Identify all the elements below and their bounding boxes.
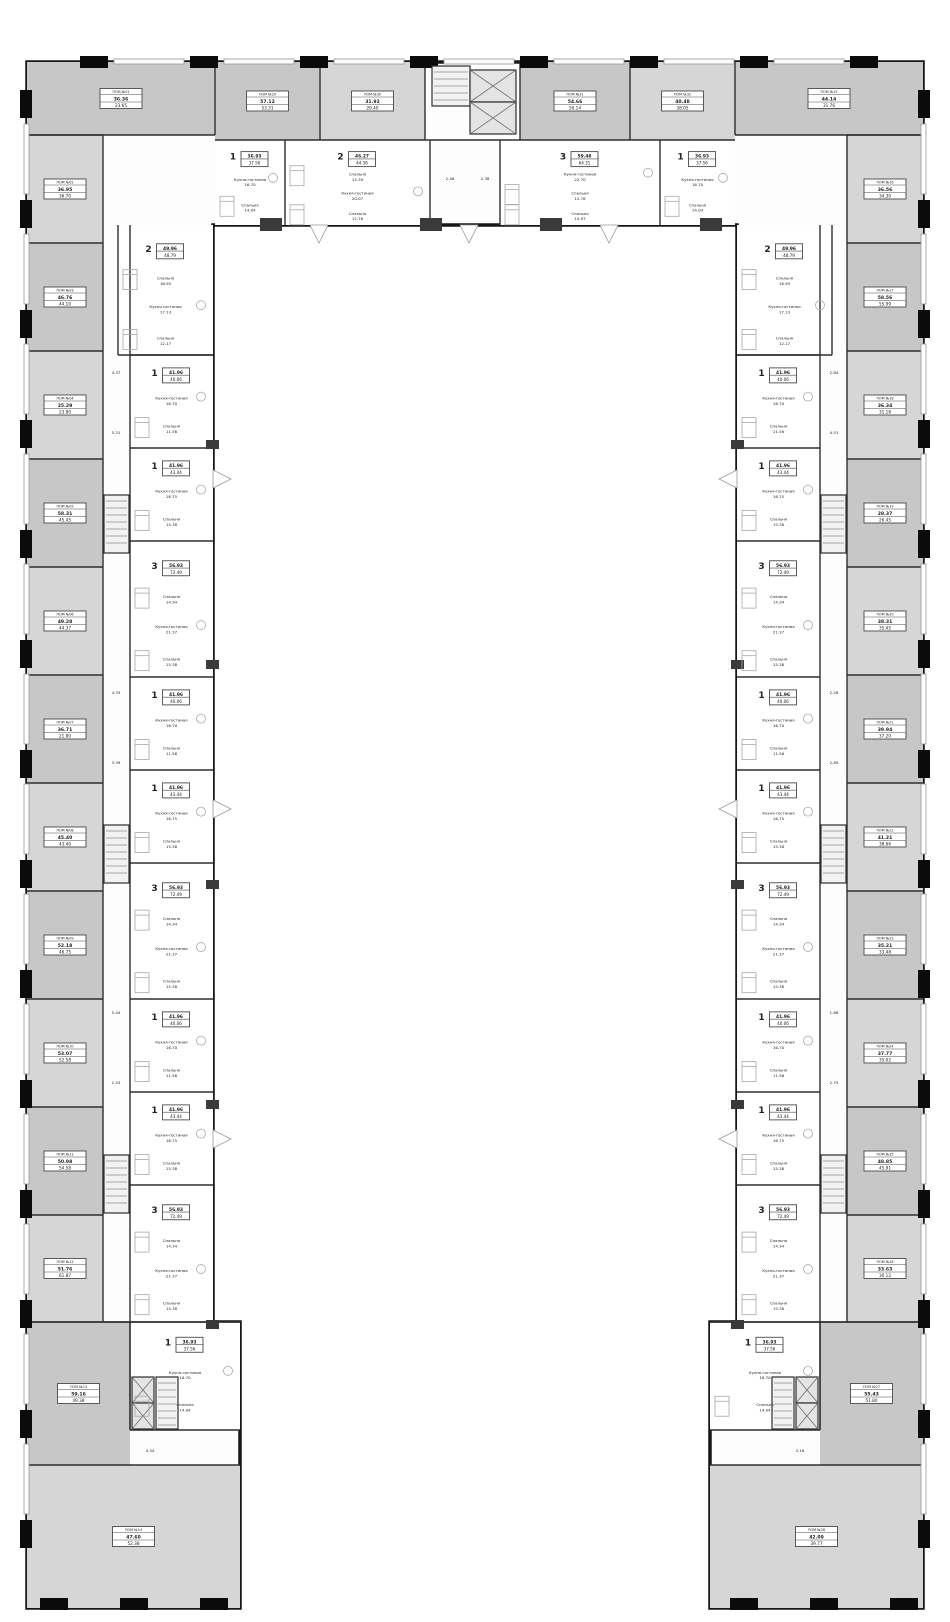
apartment-type-number: 1 [151,1013,157,1023]
window [24,454,29,524]
window-swing-icon [213,1130,231,1148]
commercial-area-2: 21.80 [59,734,71,739]
pier [200,1598,228,1610]
pier [120,1598,148,1610]
room-name: Спальня [349,211,367,216]
stairs-icon [772,1377,794,1429]
room-area: 16.75 [166,494,178,499]
room-area: 11.56 [773,751,785,756]
window [921,894,926,964]
commercial-area-2: 38.66 [879,842,891,847]
commercial-area-2: 51.80 [866,1398,878,1403]
window [921,784,926,854]
room-area: 14.34 [166,1244,178,1249]
window [24,674,29,744]
room-name: Кухня-гостиная [762,1133,795,1138]
commercial-area-total: 31.92 [365,99,380,105]
window-swing-icon [310,225,328,243]
window [554,59,624,64]
room-name: Спальня [776,276,794,281]
commercial-area-total: 33.63 [878,1267,893,1273]
room-name: Спальня [163,839,181,844]
window-swing-icon [213,800,231,818]
apartment-area-total: 36.93 [763,1339,777,1345]
window [24,894,29,964]
pier [918,1410,930,1438]
apartment-type-number: 2 [145,245,151,255]
pier [730,1598,758,1610]
apartment-type-number: 3 [560,153,566,163]
commercial-id: ПОМ №28 [808,1528,825,1532]
pier [190,56,218,68]
pier [20,90,32,118]
apartment-type-number: 1 [165,1338,171,1348]
room-name: Спальня [163,1238,181,1243]
commercial-area-2: 37.20 [879,734,891,739]
pier [890,1598,918,1610]
room-area: 11.56 [773,1073,785,1078]
room-area: 15.38 [773,1166,785,1171]
wall-stub [731,1320,744,1329]
window [921,1114,926,1184]
window [24,124,29,194]
stairs-icon [156,1377,178,1429]
apartment-area-total: 41.96 [776,370,790,376]
commercial-area-2: 44.37 [59,626,71,631]
corridor-area-number: 2.84 [830,370,839,375]
commercial-id: ПОМ №20 [876,613,893,617]
room-name: Кухня-гостиная [564,172,597,177]
corridor-area-number: 5.31 [112,430,121,435]
room-name: Кухня-гостиная [155,718,188,723]
room-name: Кухня-гостиная [155,624,188,629]
pier [80,56,108,68]
apartment-type-number: 1 [758,369,764,379]
room-area: 16.70 [692,182,704,187]
room-name: Кухня-гостиная [155,396,188,401]
window [24,1114,29,1184]
window [24,1334,29,1404]
commercial-id: ПОМ №26 [876,1260,893,1264]
apartment-area-living: 37.56 [764,1346,776,1351]
room-name: Кухня-гостиная [341,190,374,195]
wall-stub [206,880,219,889]
commercial-id: ПОМ №17 [876,289,893,293]
room-area: 16.70 [179,1375,191,1380]
apartment-area-total: 46.27 [355,154,369,160]
apartment-area-living: 40.06 [777,377,789,382]
commercial-id: ПОМ №22 [876,829,893,833]
commercial-area-total: 41.21 [878,835,893,841]
pier [20,530,32,558]
commercial-id: ПОМ №02 [56,181,73,185]
commercial-area-total: 38.31 [878,619,893,625]
room-area: 21.37 [166,1273,178,1278]
commercial-area-2: 30.12 [879,1273,891,1278]
pier [20,640,32,668]
room-name: Кухня-гостиная [155,811,188,816]
room-area: 14.34 [166,922,178,927]
apartment-area-total: 41.96 [169,1014,183,1020]
room-name: Кухня-гостиная [762,718,795,723]
commercial-id: ПОМ №23 [876,937,893,941]
room-area: 14.97 [574,216,586,221]
room-area: 16.70 [244,182,256,187]
room-name: Спальня [163,1301,181,1306]
room-name: Спальня [770,1301,788,1306]
commercial-id: ПОМ №32 [674,93,691,97]
window [921,234,926,304]
room-area: 15.38 [773,984,785,989]
apartment-area-total: 56.93 [169,563,183,569]
commercial-area-2: 45.45 [59,518,71,523]
pier [20,750,32,778]
window [921,1334,926,1404]
commercial-id: ПОМ №12 [56,1260,73,1264]
window [921,1444,926,1514]
room-name: Спальня [241,202,259,207]
stairs-icon [821,825,846,883]
wall-stub [700,218,722,231]
commercial-area-total: 44.14 [822,97,837,103]
window [921,124,926,194]
room-name: Кухня-гостиная [762,946,795,951]
wall-stub [206,660,219,669]
apartment-type-number: 1 [151,1106,157,1116]
room-area: 15.38 [166,844,178,849]
room-area: 14.34 [773,922,785,927]
room-area: 11.56 [166,1073,178,1078]
commercial-area-total: 36.56 [878,187,893,193]
apartment-area-total: 41.96 [169,1107,183,1113]
floor-plan-page: ПОМ №0136.3623.65ПОМ №0236.9536.70ПОМ №0… [0,0,950,1622]
apartment-area-living: 40.06 [777,1021,789,1026]
room-area: 20.07 [352,196,364,201]
pier [40,1598,68,1610]
commercial-area-2: 43.40 [59,842,71,847]
corridor-area-number: 4.34 [146,1448,155,1453]
stairs-icon [821,1155,846,1213]
room-area: 16.70 [773,1045,785,1050]
commercial-id: ПОМ №16 [876,181,893,185]
room-name: Кухня-гостиная [762,1268,795,1273]
window [921,454,926,524]
apartment-area-total: 36.93 [183,1339,197,1345]
room-area: 17.13 [779,310,791,315]
pier [20,860,32,888]
commercial-id: ПОМ №15 [820,90,837,94]
commercial-id: ПОМ №07 [56,721,73,725]
pier [918,310,930,338]
window-swing-icon [460,225,478,243]
room-area: 17.13 [160,310,172,315]
commercial-area-2: 54.58 [59,1166,71,1171]
pier [20,1520,32,1548]
apartment-type-number: 1 [758,784,764,794]
pier [20,1190,32,1218]
room-area: 16.70 [166,1045,178,1050]
corridor-area-number: 2.75 [830,1080,839,1085]
pier [20,1410,32,1438]
commercial-id: ПОМ №10 [56,1045,73,1049]
room-area: 16.75 [166,1138,178,1143]
commercial-area-2: 36.70 [59,194,71,199]
room-area: 16.75 [773,816,785,821]
room-name: Кухня-гостиная [149,304,182,309]
window [24,234,29,304]
apartment-area-total: 56.93 [776,885,790,891]
room-area: 14.04 [692,208,704,213]
window [24,784,29,854]
apartment-area-living: 64.31 [579,161,591,166]
apartment-type-number: 1 [230,153,236,163]
room-name: Спальня [770,1161,788,1166]
room-name: Кухня-гостиная [234,177,267,182]
stairs-icon [104,1155,129,1213]
corridor-area-number: 3.39 [112,760,121,765]
room-name: Спальня [157,335,175,340]
apartment-area-living: 43.44 [777,1114,789,1119]
room-name: Спальня [770,424,788,429]
pier [918,1190,930,1218]
room-area: 16.70 [759,1375,771,1380]
room-area: 21.37 [773,951,785,956]
room-name: Спальня [571,190,589,195]
commercial-id: ПОМ №24 [876,1045,893,1049]
room-name: Кухня-гостиная [155,946,188,951]
room-name: Спальня [176,1402,194,1407]
pier [630,56,658,68]
commercial-area-total: 54.66 [568,99,583,105]
room-name: Кухня-гостиная [155,1040,188,1045]
window-swing-icon [600,225,618,243]
room-area: 16.70 [166,401,178,406]
room-area: 12.17 [160,341,172,346]
apartment-area-total: 56.93 [169,885,183,891]
window [224,59,294,64]
room-name: Спальня [163,517,181,522]
pier [850,56,878,68]
commercial-area-total: 28.37 [878,511,893,517]
room-area: 14.04 [759,1408,771,1413]
room-name: Спальня [163,979,181,984]
room-area: 16.75 [773,1138,785,1143]
apartment-area-living: 72.49 [170,892,182,897]
apartment-area-living: 37.56 [184,1346,196,1351]
room-name: Кухня-гостиная [762,1040,795,1045]
commercial-area-2: 26.45 [879,518,891,523]
window [24,564,29,634]
room-area: 15.38 [166,1306,178,1311]
commercial-area-total: 46.76 [58,295,73,301]
apartment-type-number: 1 [151,691,157,701]
room-name: Кухня-гостиная [762,624,795,629]
apartment-type-number: 3 [151,884,157,894]
room-area: 16.75 [166,816,178,821]
floor-plan-canvas: ПОМ №0136.3623.65ПОМ №0236.9536.70ПОМ №0… [0,0,950,1622]
corridor-area-number: 2.89 [830,760,839,765]
room-area: 14.04 [244,208,256,213]
corridor-area-number: 4.51 [830,430,839,435]
room-name: Спальня [770,657,788,662]
apartment-area-total: 41.96 [169,370,183,376]
corridor-area-number: 4.33 [112,690,121,695]
commercial-area-2: 44.10 [59,302,71,307]
apartment-area-total: 41.96 [169,692,183,698]
commercial-id: ПОМ №03 [56,289,73,293]
apartment-type-number: 3 [151,1206,157,1216]
commercial-id: ПОМ №01 [112,90,129,94]
apartment-type-number: 1 [758,1013,764,1023]
apartment-area-living: 37.56 [696,161,708,166]
commercial-area-total: 58.31 [58,511,73,517]
commercial-area-total: 45.40 [58,835,73,841]
apartment-type-number: 1 [758,1106,764,1116]
commercial-area-2: 49.38 [73,1398,85,1403]
commercial-area-2: 45.91 [879,1166,891,1171]
wall-stub [731,880,744,889]
apartment-area-total: 41.96 [776,785,790,791]
commercial-area-total: 50.98 [58,1159,73,1165]
pier [918,420,930,448]
room-name: Кухня-гостиная [169,1370,202,1375]
apartment-area-living: 43.44 [170,470,182,475]
commercial-area-2: 53.31 [262,106,274,111]
corridor-area-number: 5.44 [112,1010,121,1015]
room-area: 14.34 [773,1244,785,1249]
commercial-id: ПОМ №05 [56,505,73,509]
room-name: Кухня-гостиная [762,396,795,401]
commercial-area-total: 35.21 [878,943,893,949]
pier [918,200,930,228]
room-name: Спальня [770,839,788,844]
room-name: Спальня [770,594,788,599]
pier [918,970,930,998]
room-name: Спальня [689,202,707,207]
commercial-id: ПОМ №13 [70,1385,87,1389]
commercial-area-2: 35.02 [879,1058,891,1063]
room-name: Спальня [756,1402,774,1407]
commercial-id: ПОМ №27 [863,1385,880,1389]
window-swing-icon [213,470,231,488]
commercial-area-2: 31.18 [879,410,891,415]
apartment-area-living: 48.79 [164,253,176,258]
room-name: Кухня-гостиная [768,304,801,309]
room-name: Спальня [770,916,788,921]
commercial-id: ПОМ №31 [566,93,583,97]
commercial-area-total: 51.76 [58,1267,73,1273]
apartment-type-number: 2 [337,153,343,163]
room-name: Кухня-гостиная [681,177,714,182]
room-area: 12.78 [574,196,586,201]
room-name: Кухня-гостиная [749,1370,782,1375]
wall-stub [206,1100,219,1109]
commercial-area-total: 25.29 [58,403,73,409]
corridor-area-number: 2.28 [830,690,839,695]
commercial-area-total: 36.34 [878,403,893,409]
pier [20,1080,32,1108]
apartment-area-living: 40.06 [170,377,182,382]
window [921,344,926,414]
room-name: Спальня [163,916,181,921]
commercial-area-total: 57.12 [260,99,275,105]
apartment-type-number: 2 [764,245,770,255]
window [921,1004,926,1074]
commercial-area-total: 48.85 [878,1159,893,1165]
apartment-area-living: 40.06 [777,699,789,704]
apartment-type-number: 3 [151,562,157,572]
pier [20,420,32,448]
room-name: Спальня [770,1068,788,1073]
room-area: 11.56 [773,429,785,434]
window [334,59,404,64]
apartment-area-living: 37.56 [249,161,261,166]
apartment-area-total: 41.96 [776,1107,790,1113]
window [24,344,29,414]
wall-stub [420,218,442,231]
apartment-type-number: 1 [677,153,683,163]
commercial-area-2: 33.48 [879,950,891,955]
apartment-area-living: 72.49 [777,892,789,897]
apartment-type-number: 1 [758,462,764,472]
corridor-area-number: 2.38 [481,176,490,181]
window [921,564,926,634]
room-area: 21.37 [773,1273,785,1278]
corridor-area-number: 2.46 [446,176,455,181]
apartment-area-total: 41.96 [776,692,790,698]
commercial-area-total: 36.95 [58,187,73,193]
commercial-area-2: 55.99 [879,302,891,307]
room-name: Спальня [163,594,181,599]
commercial-area-2: 31.76 [823,103,835,108]
room-name: Спальня [776,335,794,340]
window [24,1224,29,1294]
room-area: 15.38 [773,522,785,527]
apartment-type-number: 3 [758,884,764,894]
window [114,59,184,64]
apartment-area-living: 43.44 [777,792,789,797]
pier [20,310,32,338]
pier [918,1300,930,1328]
window [664,59,734,64]
wall-stub [731,440,744,449]
apartment-area-living: 72.49 [170,1214,182,1219]
wall-stub [540,218,562,231]
pier [20,1300,32,1328]
apartment-type-number: 1 [151,462,157,472]
commercial-area-2: 39.77 [811,1541,823,1546]
commercial-area-total: 58.56 [878,295,893,301]
pier [300,56,328,68]
stairs-icon [821,495,846,553]
apartment-area-living: 43.44 [170,792,182,797]
commercial-area-total: 42.09 [809,1535,824,1541]
room-area: 15.38 [166,662,178,667]
apartment-area-living: 40.06 [170,1021,182,1026]
room-area: 15.38 [166,522,178,527]
apartment-type-number: 1 [151,369,157,379]
room-area: 15.39 [352,177,364,182]
commercial-id: ПОМ №14 [125,1528,142,1532]
apartment-type-number: 1 [151,784,157,794]
room-name: Спальня [163,424,181,429]
room-area: 14.34 [773,600,785,605]
commercial-id: ПОМ №19 [876,505,893,509]
commercial-id: ПОМ №29 [259,93,276,97]
commercial-area-2: 61.87 [59,1273,71,1278]
room-name: Спальня [770,979,788,984]
window [921,674,926,744]
